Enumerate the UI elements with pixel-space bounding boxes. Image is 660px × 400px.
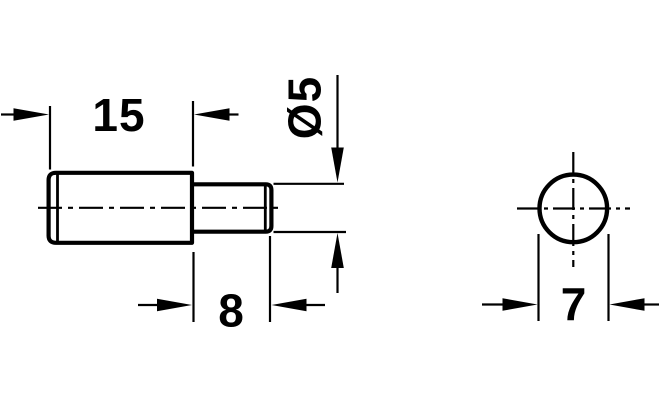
dimension-body-length: 15 [1, 89, 239, 170]
dim7-arrow-right [610, 298, 645, 311]
dimension-pin-diameter: Ø5 [274, 75, 347, 293]
dim8-arrow-left [157, 299, 192, 312]
dim15-label: 15 [92, 89, 145, 141]
technical-drawing: 15 Ø5 8 [0, 0, 660, 400]
side-view [38, 173, 282, 243]
dimension-pin-length: 8 [138, 236, 325, 337]
dia5-arrow-up [331, 233, 344, 268]
dimension-body-diameter: 7 [482, 234, 659, 330]
dim15-arrow-right [194, 108, 230, 121]
dim8-label: 8 [218, 285, 245, 337]
end-view [517, 152, 630, 267]
dim15-arrow-left [14, 108, 50, 121]
drawing-svg: 15 Ø5 8 [0, 0, 660, 400]
dim7-arrow-left [503, 298, 538, 311]
dia5-arrow-down [331, 148, 344, 183]
dim7-label: 7 [561, 278, 588, 330]
dim8-arrow-right [272, 299, 307, 312]
dia5-label: Ø5 [279, 76, 331, 139]
